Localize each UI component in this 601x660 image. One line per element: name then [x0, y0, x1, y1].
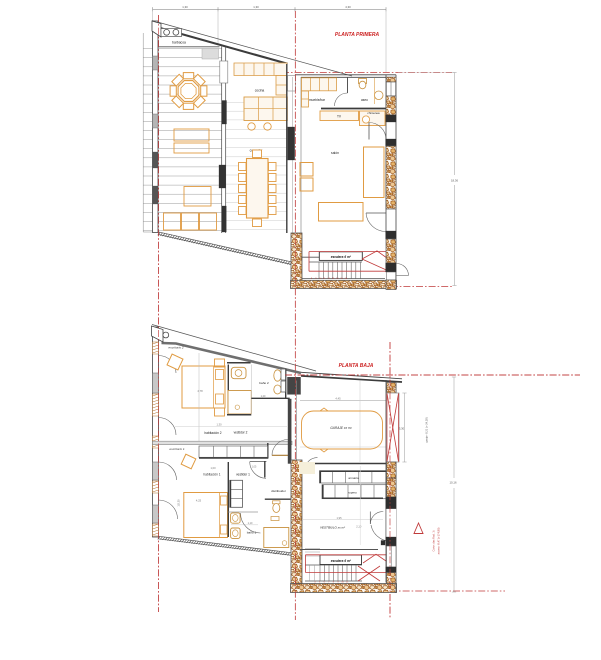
svg-text:ropero: ropero — [348, 491, 357, 495]
svg-text:2,10: 2,10 — [356, 524, 362, 528]
svg-text:mueble/bar: mueble/bar — [309, 98, 326, 102]
svg-text:1,00: 1,00 — [210, 466, 216, 470]
svg-text:PLANTA BAJA: PLANTA BAJA — [339, 363, 374, 369]
svg-text:acceso -8,47 (+174,80): acceso -8,47 (+174,80) — [437, 527, 441, 554]
svg-text:escritorio 2: escritorio 2 — [168, 346, 183, 350]
svg-text:1,30: 1,30 — [182, 5, 188, 9]
svg-text:10,16: 10,16 — [450, 481, 457, 485]
svg-text:distribuidor: distribuidor — [271, 489, 286, 493]
svg-text:escalera 6 m²: escalera 6 m² — [331, 559, 352, 563]
svg-text:baño 2: baño 2 — [259, 381, 269, 385]
svg-text:vestidor 1: vestidor 1 — [236, 473, 250, 477]
svg-text:4,25: 4,25 — [196, 499, 202, 503]
svg-text:escritorio 1: escritorio 1 — [169, 447, 184, 451]
svg-text:aseo: aseo — [361, 98, 368, 102]
svg-text:1/2,30: 1/2,30 — [177, 499, 181, 507]
svg-text:1,20: 1,20 — [261, 395, 266, 398]
svg-text:1,30: 1,30 — [216, 423, 222, 427]
svg-text:1,30: 1,30 — [273, 551, 279, 555]
svg-text:3,30: 3,30 — [399, 427, 405, 431]
svg-text:4,45: 4,45 — [335, 397, 341, 401]
svg-text:1,95: 1,95 — [336, 516, 342, 520]
svg-text:armario: armario — [348, 476, 359, 480]
svg-text:1,10: 1,10 — [248, 522, 253, 525]
svg-text:VESTÍBULO xx m²: VESTÍBULO xx m² — [320, 525, 346, 529]
svg-text:1,05: 1,05 — [252, 466, 257, 469]
svg-text:garaje -8,21 (+-24,28): garaje -8,21 (+-24,28) — [425, 417, 429, 442]
svg-text:1,30: 1,30 — [253, 5, 259, 9]
svg-text:4,78: 4,78 — [197, 389, 203, 393]
svg-text:habitación 1: habitación 1 — [203, 473, 220, 477]
svg-text:habitación 2: habitación 2 — [204, 431, 221, 435]
svg-text:4,30: 4,30 — [345, 5, 351, 9]
svg-text:salón: salón — [331, 151, 339, 155]
svg-text:vestidor 2: vestidor 2 — [234, 431, 248, 435]
svg-text:18,36: 18,36 — [451, 179, 458, 183]
svg-text:escalera 6 m²: escalera 6 m² — [331, 255, 352, 259]
svg-text:chimenea: chimenea — [367, 111, 380, 115]
svg-text:cocina: cocina — [255, 89, 265, 93]
svg-text:GARAJE xx m²: GARAJE xx m² — [330, 426, 352, 430]
svg-text:PLANTA PRIMERA: PLANTA PRIMERA — [335, 32, 380, 38]
svg-text:Corte: das Rad. 1t: Corte: das Rad. 1t — [432, 530, 436, 551]
svg-text:barbacoa: barbacoa — [172, 41, 186, 45]
